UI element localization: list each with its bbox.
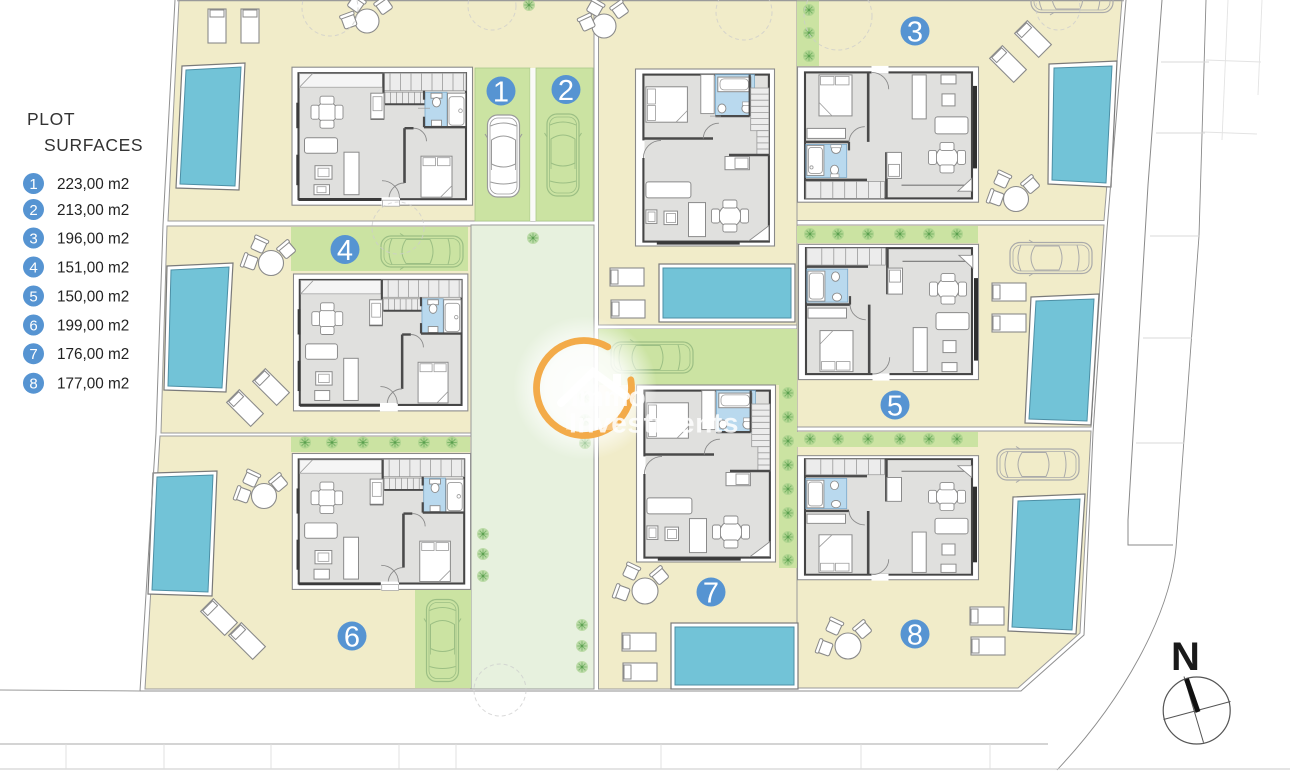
svg-text:PLOT: PLOT [27, 109, 75, 129]
svg-text:177,00 m2: 177,00 m2 [57, 376, 129, 393]
svg-text:SURFACES: SURFACES [44, 135, 143, 155]
svg-text:4: 4 [29, 260, 37, 277]
svg-text:8: 8 [29, 376, 37, 393]
svg-text:7: 7 [29, 346, 37, 363]
svg-text:5: 5 [887, 391, 903, 423]
svg-text:8: 8 [907, 620, 923, 652]
svg-text:Investments: Investments [569, 408, 739, 439]
svg-text:N: N [1171, 635, 1200, 679]
svg-text:150,00 m2: 150,00 m2 [57, 289, 129, 306]
svg-text:2: 2 [29, 202, 37, 219]
svg-text:1: 1 [493, 77, 509, 109]
svg-text:2: 2 [558, 75, 574, 107]
svg-text:3: 3 [29, 231, 37, 248]
svg-text:151,00 m2: 151,00 m2 [57, 260, 129, 277]
svg-text:196,00 m2: 196,00 m2 [57, 231, 129, 248]
svg-text:199,00 m2: 199,00 m2 [57, 318, 129, 335]
svg-text:213,00 m2: 213,00 m2 [57, 202, 129, 219]
svg-text:6: 6 [29, 318, 37, 335]
svg-text:6: 6 [344, 622, 360, 654]
svg-text:3: 3 [907, 17, 923, 49]
svg-text:1: 1 [29, 176, 37, 193]
svg-text:223,00 m2: 223,00 m2 [57, 176, 129, 193]
svg-text:4: 4 [337, 235, 353, 267]
svg-text:5: 5 [29, 289, 37, 306]
svg-text:176,00 m2: 176,00 m2 [57, 346, 129, 363]
svg-text:7: 7 [703, 578, 719, 610]
